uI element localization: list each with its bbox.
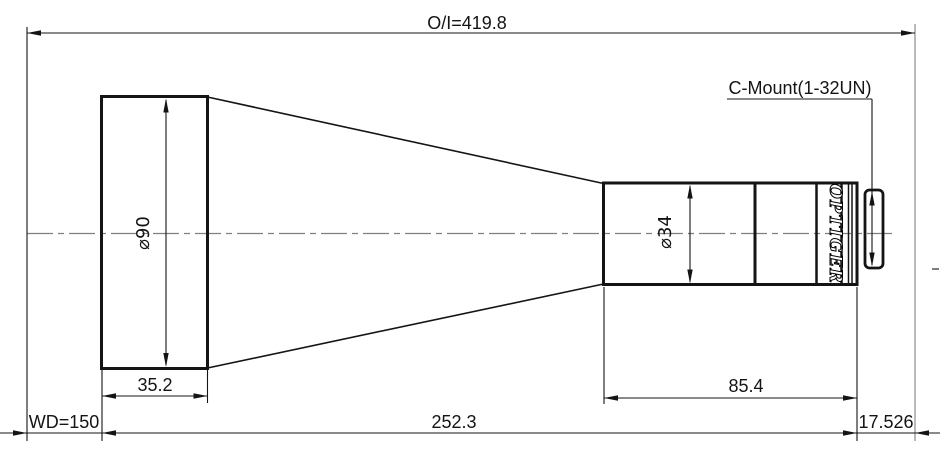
brand-label: OPTIGER bbox=[825, 184, 845, 284]
arrow-right-icon bbox=[843, 430, 857, 435]
optical-axis-centerline bbox=[27, 234, 939, 270]
arrow-down-icon bbox=[869, 253, 874, 267]
arrow-left-icon bbox=[915, 430, 929, 435]
arrow-up-icon bbox=[869, 192, 874, 206]
cone-top-edge bbox=[208, 97, 604, 184]
cmount-thread bbox=[865, 190, 883, 268]
cmount-label: C-Mount(1-32UN) bbox=[728, 78, 871, 98]
rear-length-text: 85.4 bbox=[728, 376, 763, 396]
oi-dimension-text: O/I=419.8 bbox=[427, 13, 507, 33]
dim-rear-length: 85.4 bbox=[604, 287, 857, 441]
arrow-left-icon bbox=[604, 395, 618, 400]
arrow-right-icon bbox=[194, 393, 208, 398]
cone-bottom-edge bbox=[208, 284, 604, 368]
flange-focal-text: 17.526 bbox=[858, 412, 913, 432]
arrow-left-icon bbox=[27, 30, 41, 35]
arrow-right-icon bbox=[901, 30, 915, 35]
arrow-down-icon bbox=[687, 270, 692, 284]
lens-technical-drawing: OPTIGER O/I=419.8 ⌀90 ⌀34 C-Mount(1-32UN… bbox=[0, 0, 940, 461]
lens-outline: OPTIGER bbox=[102, 97, 884, 369]
arrow-right-icon bbox=[843, 395, 857, 400]
dim-front-length: 35.2 bbox=[102, 370, 208, 442]
dim-front-diameter: ⌀90 bbox=[133, 99, 169, 368]
dim-bottom-chain: WD=150 252.3 17.526 bbox=[0, 412, 940, 436]
working-distance-text: WD=150 bbox=[29, 412, 100, 432]
dim-rear-diameter: ⌀34 bbox=[655, 185, 693, 284]
front-barrel bbox=[102, 97, 208, 369]
mid-length-text: 252.3 bbox=[431, 412, 476, 432]
arrow-down-icon bbox=[163, 353, 168, 367]
stage: OPTIGER O/I=419.8 ⌀90 ⌀34 C-Mount(1-32UN… bbox=[0, 0, 940, 461]
front-length-text: 35.2 bbox=[137, 375, 172, 395]
arrow-up-icon bbox=[163, 99, 168, 113]
arrow-right-icon bbox=[13, 430, 27, 435]
phi90-dimension-text: ⌀90 bbox=[133, 216, 154, 250]
arrow-left-icon bbox=[102, 393, 116, 398]
arrow-left-icon bbox=[102, 430, 116, 435]
arrow-up-icon bbox=[687, 185, 692, 199]
phi34-dimension-text: ⌀34 bbox=[655, 215, 676, 249]
